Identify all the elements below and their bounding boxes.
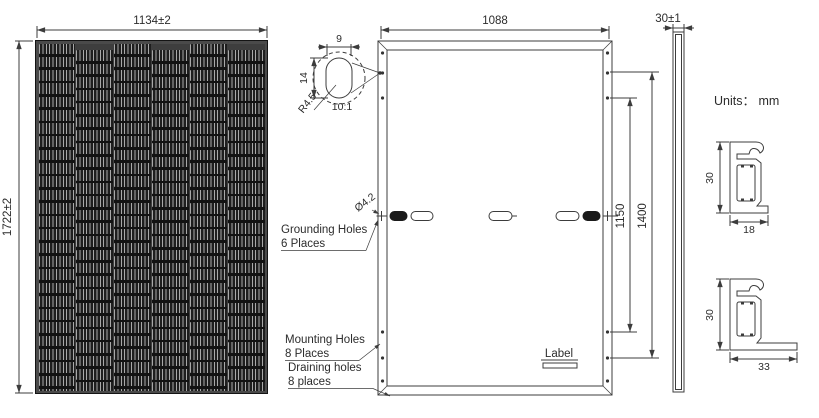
grounding-note-line2: 6 Places	[281, 238, 325, 250]
label-text: Label	[545, 348, 573, 360]
label-placement: Label	[541, 348, 578, 368]
draining-note: Draining holes 8 places	[288, 362, 390, 396]
mounting-note: Mounting Holes 8 Places	[285, 334, 380, 361]
detail-width-value: 9	[336, 33, 342, 45]
frame-holes	[381, 51, 609, 382]
front-height-value: 1722±2	[2, 198, 14, 236]
technical-drawing: 1134±2 1722±2	[0, 0, 819, 418]
hole-diameter-note: Ø4.2	[352, 191, 379, 215]
profile-top-height-value: 30	[704, 172, 716, 184]
side-thickness-value: 30±1	[655, 13, 681, 25]
draining-note-line2: 8 places	[288, 376, 331, 388]
frame-profile-top: 30 18	[704, 142, 768, 236]
frame-profile-bottom: 30 33	[704, 279, 797, 373]
detail-radius-value: R4.5	[296, 91, 319, 116]
mid-mounting-slots	[390, 212, 600, 221]
units-label: Units： mm	[714, 94, 779, 108]
front-height-dimension: 1722±2	[2, 41, 33, 393]
grounding-note-line1: Grounding Holes	[281, 224, 368, 236]
grounding-note: Grounding Holes 6 Places	[281, 220, 378, 251]
mounting-note-line2: 8 Places	[285, 348, 329, 360]
front-width-value: 1134±2	[133, 15, 170, 27]
drawing-canvas: 1134±2 1722±2	[0, 0, 819, 418]
detail-scale-value: 10:1	[332, 101, 353, 113]
profile-bottom-width-value: 33	[758, 361, 770, 373]
detail-height-value: 14	[298, 72, 310, 84]
mount-spacing-outer-value: 1400	[637, 203, 649, 229]
profile-top-width-value: 18	[743, 224, 755, 236]
back-view-frame	[378, 41, 612, 395]
front-width-dimension: 1134±2	[37, 15, 267, 38]
back-width-dimension: 1088	[381, 15, 609, 39]
side-view: 30±1	[655, 13, 694, 392]
mounting-note-line1: Mounting Holes	[285, 334, 365, 346]
draining-note-line1: Draining holes	[288, 362, 362, 374]
mount-spacing-inner-dimension: 1150	[610, 98, 637, 332]
detail-view: 9 14 R4.5 10:1	[296, 33, 382, 116]
mount-spacing-inner-value: 1150	[615, 204, 627, 229]
back-width-value: 1088	[482, 15, 508, 27]
profile-bottom-height-value: 30	[704, 309, 716, 321]
